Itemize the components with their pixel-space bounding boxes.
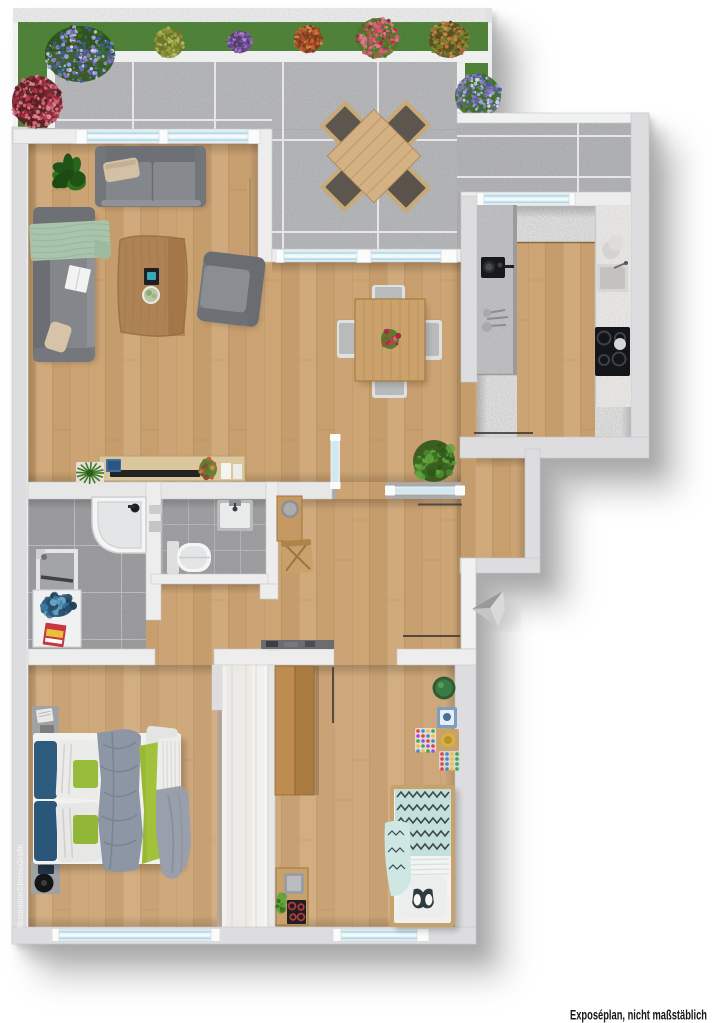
svg-text:Exposéplan, nicht maßstäblich: Exposéplan, nicht maßstäblich — [570, 1007, 707, 1023]
svg-text:Illustration©ImmoGrafik: Illustration©ImmoGrafik — [16, 843, 25, 928]
